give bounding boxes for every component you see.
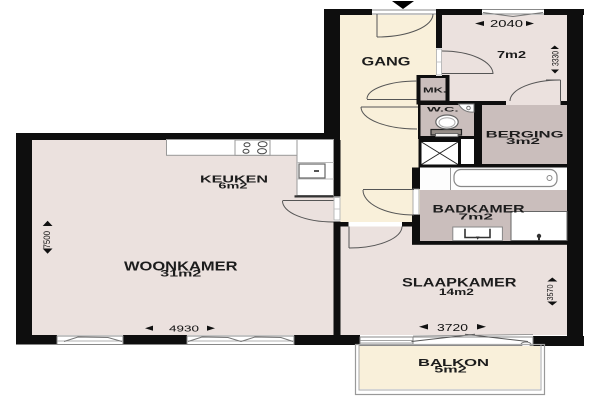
svg-text:W.C.: W.C. xyxy=(427,106,459,113)
svg-text:GANG: GANG xyxy=(362,55,411,69)
svg-text:3570: 3570 xyxy=(546,284,555,300)
svg-text:2040: 2040 xyxy=(490,19,524,30)
svg-text:MK.: MK. xyxy=(423,85,447,94)
svg-text:4930: 4930 xyxy=(169,323,199,333)
svg-text:31m2: 31m2 xyxy=(160,269,201,279)
svg-text:3m2: 3m2 xyxy=(506,137,541,146)
svg-text:6m2: 6m2 xyxy=(218,182,248,191)
svg-text:3720: 3720 xyxy=(437,322,468,334)
svg-text:14m2: 14m2 xyxy=(439,287,474,297)
svg-text:3330: 3330 xyxy=(551,51,562,66)
svg-text:7500: 7500 xyxy=(42,231,52,249)
svg-text:7m2: 7m2 xyxy=(459,211,494,221)
svg-text:5m2: 5m2 xyxy=(434,365,467,375)
svg-text:7m2: 7m2 xyxy=(497,49,526,61)
